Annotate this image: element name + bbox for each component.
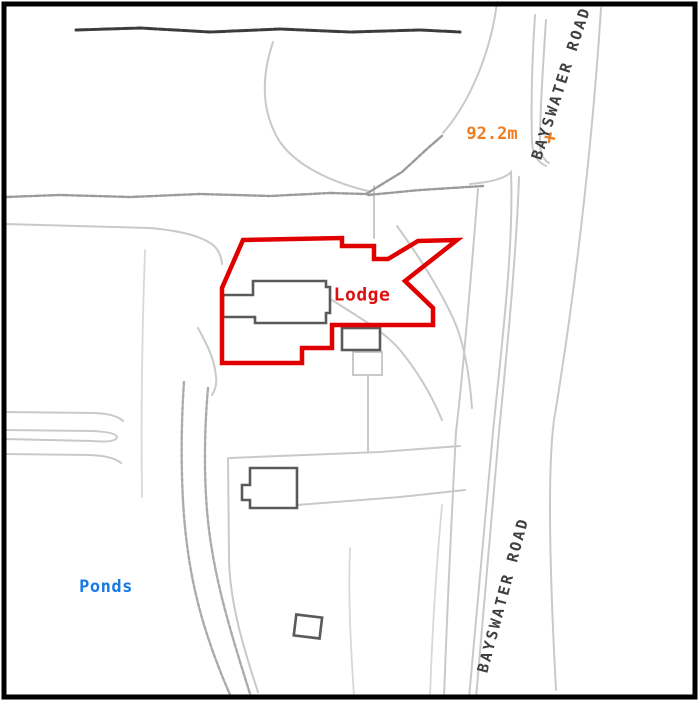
top-block-south-rough-edge xyxy=(6,193,366,197)
speckled-path-group xyxy=(182,382,251,697)
top-area-bay-curve xyxy=(265,42,368,191)
ponds-name-label: Ponds xyxy=(79,577,133,597)
driveway-southeast-curve xyxy=(332,300,442,420)
rough-lines-group xyxy=(6,135,483,197)
faint-plot-line xyxy=(142,250,145,497)
road-west-outer-line xyxy=(444,189,478,698)
spot-height-label: 92.2m xyxy=(466,124,517,144)
pond-bank-line-2 xyxy=(4,430,117,442)
field-boundary-lower xyxy=(297,490,465,505)
small-shed-footprint xyxy=(294,614,322,638)
pond-bank-line-3 xyxy=(4,454,121,463)
lodge-outbuilding xyxy=(342,328,380,350)
junction-northwest-curve xyxy=(443,2,497,133)
faint-drive-edge xyxy=(430,505,442,697)
junction-south-rough-edge xyxy=(368,186,483,195)
pond-bank-line-1 xyxy=(4,412,123,421)
top-block-diagonal-rough-edge xyxy=(366,135,443,194)
field-boundary-upper xyxy=(230,446,460,458)
buildings-group xyxy=(223,281,380,639)
south-building-footprint xyxy=(242,468,297,508)
base-map-outbuilding-outline xyxy=(353,352,382,375)
map-canvas: BAYSWATER ROAD BAYSWATER ROAD 92.2m + Lo… xyxy=(0,0,699,701)
lodge-building-footprint xyxy=(223,281,330,323)
side-road-south-edge xyxy=(4,224,222,264)
faint-path-line xyxy=(349,548,354,697)
lodge-name-label: Lodge xyxy=(334,285,391,306)
top-terrace-dark-edge xyxy=(76,28,460,32)
driveway-west-curl xyxy=(198,328,216,395)
